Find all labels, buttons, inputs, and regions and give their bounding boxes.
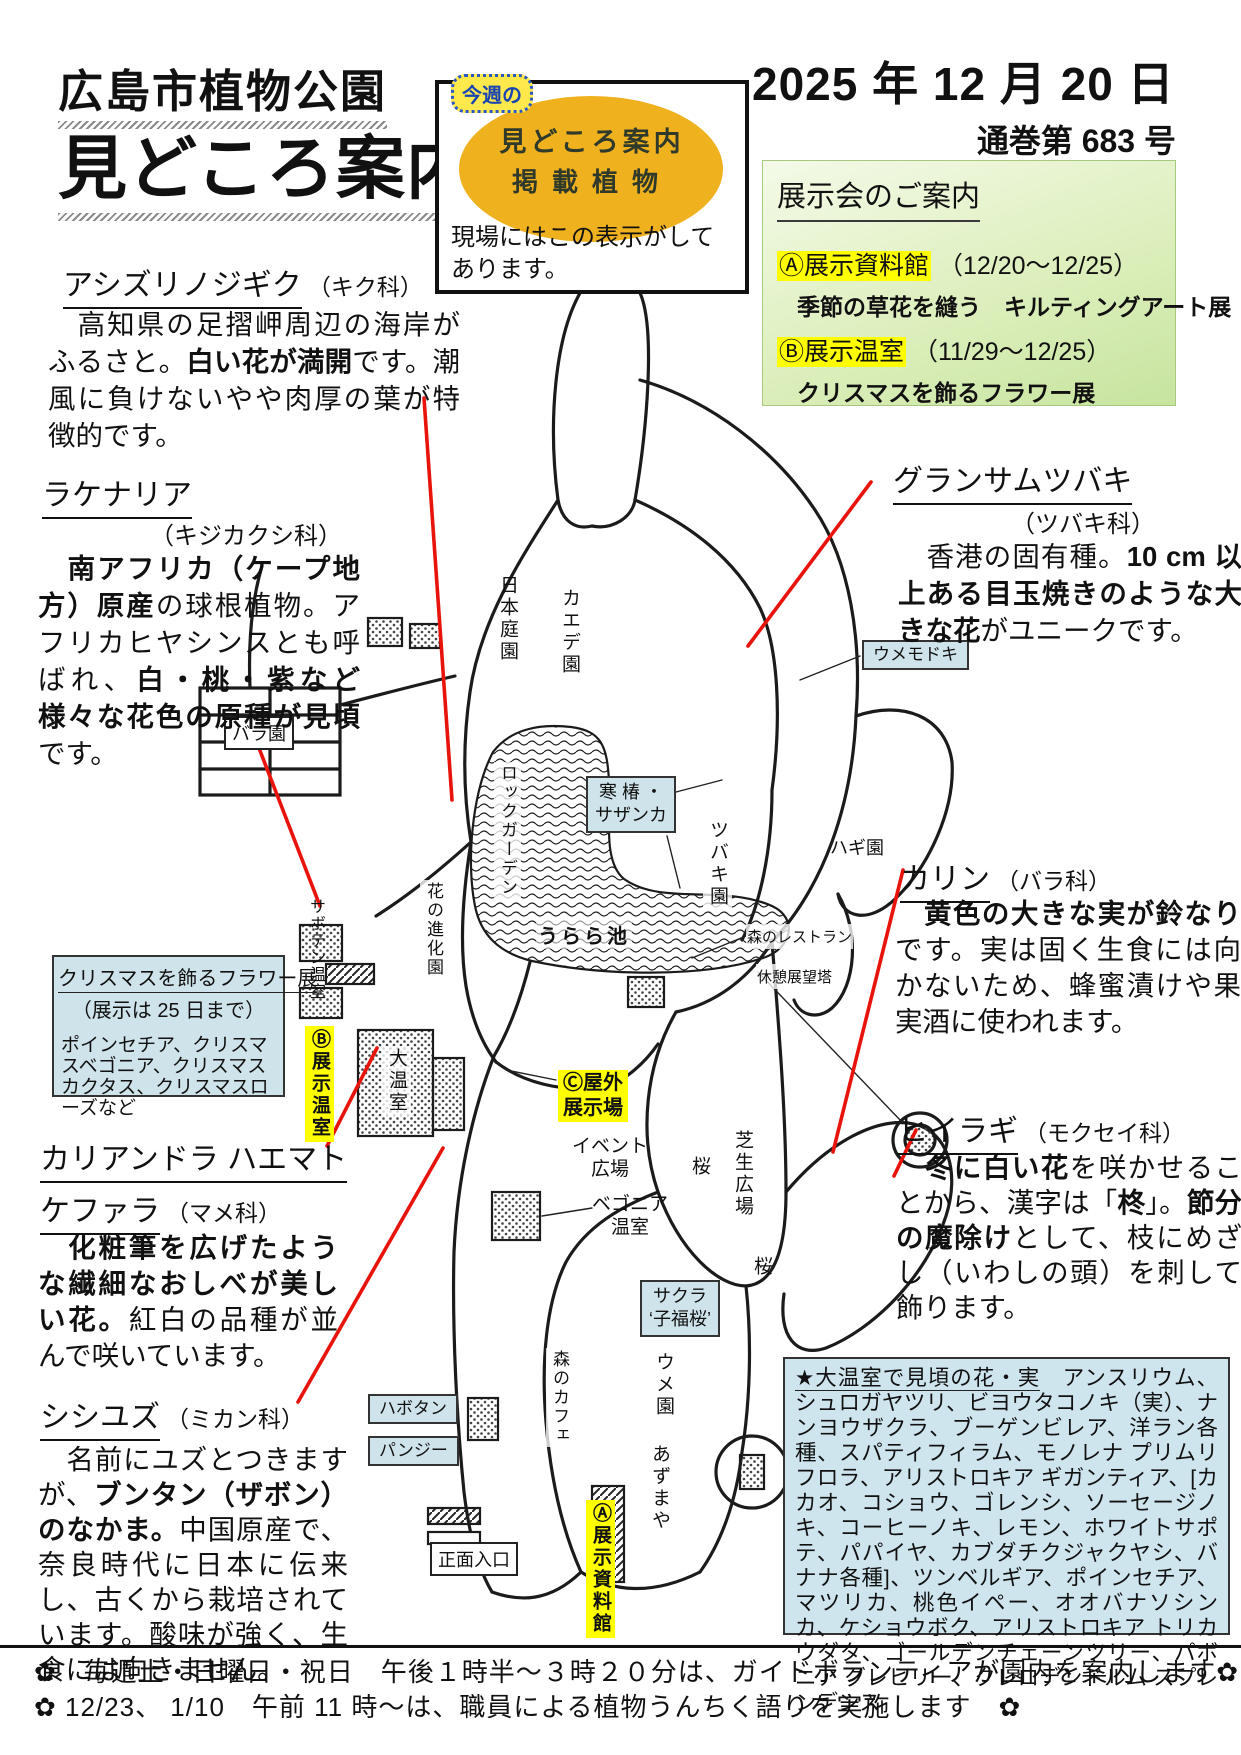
map-label-sakura-north: 桜 bbox=[686, 1156, 713, 1178]
article-ashizuri-body: 高知県の足摺岬周辺の海岸がふるさと。白い花が満開です。潮風に負けないやや肉厚の葉… bbox=[48, 306, 460, 454]
article-calliandra-body: 化粧筆を広げたような繊細なおしべが美しい花。紅白の品種が並んで咲いています。 bbox=[38, 1230, 338, 1374]
map-label-b-tenji-onshitsu: Ⓑ展示温室 bbox=[305, 1026, 334, 1142]
map-label-mori-no-restaurant: 森のレストラン bbox=[746, 924, 853, 949]
pond-side-building bbox=[628, 977, 664, 1007]
newsletter-page: 広島市植物公園 見どころ案内 今週の 見どころ案内 掲載植物 現場にはこの表示が… bbox=[0, 0, 1241, 1755]
cafe-building bbox=[468, 1398, 498, 1440]
map-label-hagi-en: ハギ園 bbox=[830, 834, 884, 860]
dai-onshitsu-annex bbox=[433, 1058, 464, 1130]
map-label-urara-ike: うらら池 bbox=[536, 920, 632, 949]
flower-show-title: クリスマスを飾るフラワー展 bbox=[58, 962, 317, 993]
leader-layer-okugai bbox=[506, 1070, 556, 1080]
footer-divider bbox=[0, 1645, 1241, 1648]
article-calliandra-title-line1: カリアンドラ ハエマト bbox=[40, 1134, 347, 1183]
article-calliandra-title-line2: ケファラ（マメ科） bbox=[40, 1186, 281, 1235]
issue-date: 2025 年 12 月 20 日 bbox=[752, 48, 1176, 114]
exhibition-heading: 展示会のご案内 bbox=[777, 173, 980, 222]
article-hiiragi-body: 冬に白い花を咲かせることから、漢字は「柊」。節分の魔除けとして、枝にめざし（いわ… bbox=[896, 1150, 1241, 1325]
date-block: 2025 年 12 月 20 日 通巻第 683 号 bbox=[752, 48, 1176, 162]
field-sign-badge: 今週の 見どころ案内 掲載植物 現場にはこの表示がしてあります。 bbox=[435, 80, 749, 294]
red-layer-karin bbox=[833, 870, 903, 1152]
exhibition-title-b: クリスマスを飾るフラワー展 bbox=[797, 374, 1161, 408]
map-label-shibafu-hiroba: 芝生広場 bbox=[728, 1128, 757, 1220]
article-lachenalia-title: ラケナリア bbox=[42, 470, 192, 519]
article-grantham-body: 香港の固有種。10 cm 以上ある目玉焼きのような大きな花がユニークです。 bbox=[898, 538, 1241, 649]
entrance-building bbox=[428, 1508, 480, 1524]
exhibition-title-a: 季節の草花を縫う キルティングアート展 bbox=[797, 288, 1161, 322]
red-layer-ashizuri bbox=[424, 398, 452, 800]
article-ashizuri-title: アシズリノジギク（キク科） bbox=[63, 260, 423, 309]
leader-layer-tsubaki-upper bbox=[676, 780, 722, 792]
map-label-pansy: パンジー bbox=[368, 1436, 459, 1466]
map-label-ume-en: ウメ園 bbox=[650, 1352, 677, 1418]
map-label-event-hiroba: イベント広場 bbox=[572, 1136, 648, 1182]
map-label-kaede-en: カエデ園 bbox=[556, 588, 583, 676]
article-grantham-title: グランサムツバキ bbox=[893, 456, 1132, 505]
map-label-kanchubaki-sazanka: 寒 椿 ・サザンカ bbox=[586, 776, 676, 833]
leader-layer-tsubaki-lower bbox=[667, 836, 680, 888]
exhibition-item-b: Ⓑ展示温室 （11/29～12/25） bbox=[777, 332, 1161, 368]
exhibition-info-box: 展示会のご案内 Ⓐ展示資料館 （12/20～12/25） 季節の草花を縫う キル… bbox=[762, 160, 1176, 406]
page-title: 見どころ案内 bbox=[58, 112, 476, 221]
exhibition-item-a: Ⓐ展示資料館 （12/20～12/25） bbox=[777, 246, 1161, 282]
map-label-hana-no-shinka-en: 花の進化園 bbox=[420, 880, 447, 979]
map-label-a-tenji-shiryokan: Ⓐ展示資料館 bbox=[586, 1500, 615, 1638]
exhibition-dates-b: （11/29～12/25） bbox=[913, 338, 1111, 366]
exhibition-venue-b: Ⓑ展示温室 bbox=[777, 337, 906, 367]
badge-line1: 見どころ案内 bbox=[439, 120, 745, 159]
map-label-tsubaki-en: ツバキ園 bbox=[703, 818, 732, 910]
garden-building-1 bbox=[368, 618, 402, 646]
map-label-sakura-kofukuzakura: サクラ‘子福桜’ bbox=[640, 1280, 720, 1337]
map-label-azumaya: あずまや bbox=[646, 1444, 673, 1532]
flower-show-subtitle: （展示は 25 日まで） bbox=[58, 994, 279, 1023]
badge-caption: 現場にはこの表示がしてあります。 bbox=[451, 222, 729, 286]
flower-show-plants: ポインセチア、クリスマスベゴニア、クリスマスカクタス、クリスマスローズなど bbox=[58, 1035, 279, 1119]
greenhouse-highlights-heading: ★大温室で見頃の花・実 bbox=[795, 1366, 1040, 1391]
article-grantham-family: （ツバキ科） bbox=[893, 504, 1155, 539]
article-lachenalia-family: （キジカクシ科） bbox=[40, 516, 342, 551]
issue-number: 通巻第 683 号 bbox=[752, 116, 1176, 162]
map-label-kyukei-tenbodai: 休憩展望塔 bbox=[756, 964, 833, 989]
article-karin-body: 黄色の大きな実が鈴なりです。実は固く生食には向かないため、蜂蜜漬けや果実酒に使わ… bbox=[895, 896, 1241, 1040]
map-label-c-okugai-tenjijo: Ⓒ屋外展示場 bbox=[558, 1070, 628, 1122]
service-building bbox=[326, 964, 374, 984]
footer-guide-info: ✿ 毎週土・日曜日・祝日 午後１時半～３時２０分は、ガイドボランティアが園内を案… bbox=[34, 1652, 1214, 1689]
map-label-sakura-south: 桜 bbox=[748, 1256, 775, 1278]
exhibition-dates-a: （12/20～12/25） bbox=[938, 252, 1138, 280]
article-hiiragi-title: ヒイラギ（モクセイ科） bbox=[898, 1106, 1185, 1155]
map-label-shomen-iriguchi: 正面入口 bbox=[430, 1542, 518, 1576]
map-label-mori-no-cafe: 森のカフェ bbox=[546, 1348, 573, 1447]
map-label-habotan: ハボタン bbox=[368, 1394, 458, 1424]
badge-week-label: 今週の bbox=[451, 74, 533, 113]
begonia-greenhouse-building bbox=[492, 1192, 540, 1240]
article-shishiyuzu-body: 名前にユズとつきますが、ブンタン（ザボン）のなかま。中国原産で、奈良時代に日本に… bbox=[38, 1442, 348, 1687]
leader-layer-umemodoki bbox=[800, 656, 860, 680]
map-label-dai-onshitsu: 大温室 bbox=[382, 1046, 411, 1116]
greenhouse-highlights-box: ★大温室で見頃の花・実 アンスリウム、シュロガヤツリ、ビヨウタコノキ（実）、ナン… bbox=[783, 1357, 1230, 1635]
map-label-begonia-onshitsu: ベゴニア温室 bbox=[592, 1194, 668, 1240]
garden-building-2 bbox=[410, 624, 440, 648]
map-label-rock-garden: ロックガーデン bbox=[494, 762, 521, 899]
leader-layer-begonia bbox=[542, 1208, 592, 1216]
azumaya-deck bbox=[740, 1455, 764, 1489]
article-lachenalia-body: 南アフリカ（ケープ地方）原産の球根植物。アフリカヒヤシンスとも呼ばれ、白・桃・紫… bbox=[38, 550, 360, 772]
exhibition-venue-a: Ⓐ展示資料館 bbox=[777, 251, 931, 281]
flower-show-box: クリスマスを飾るフラワー展 （展示は 25 日まで） ポインセチア、クリスマスベ… bbox=[52, 955, 285, 1097]
badge-line2: 掲載植物 bbox=[439, 162, 745, 199]
footer-talk-info: ✿ 12/23、 1/10 午前 11 時～は、職員による植物うんちく語りを実施… bbox=[34, 1687, 1214, 1724]
article-shishiyuzu-title: シシユズ（ミカン科） bbox=[40, 1392, 304, 1441]
map-label-nihon-teien: 日本庭園 bbox=[494, 575, 521, 663]
